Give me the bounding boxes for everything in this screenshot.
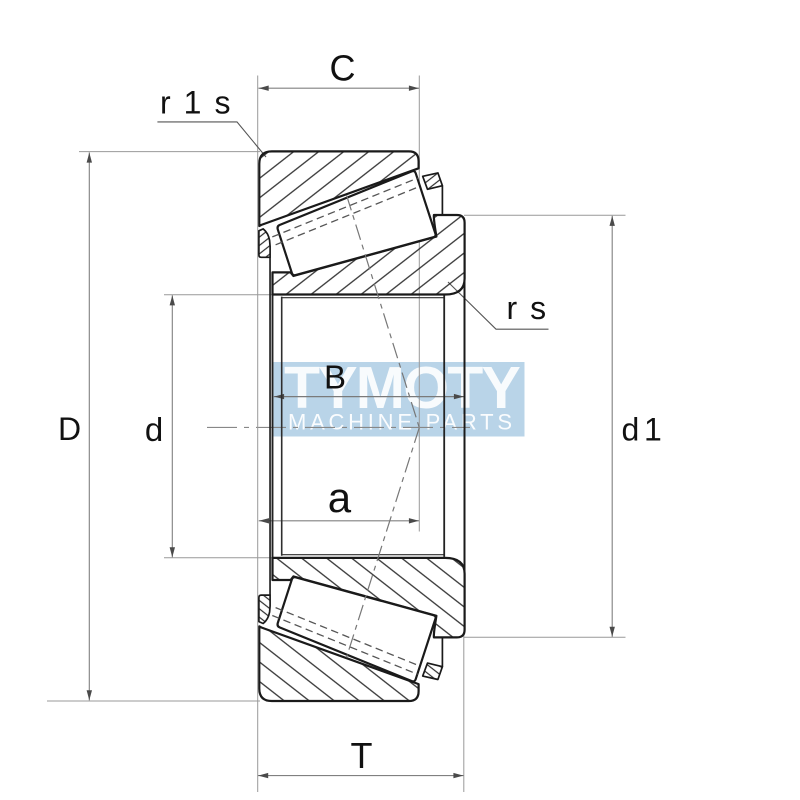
svg-text:r1s: r1s xyxy=(160,85,243,121)
svg-text:d1: d1 xyxy=(622,412,667,448)
svg-text:D: D xyxy=(58,411,81,447)
svg-text:C: C xyxy=(330,48,356,89)
svg-text:a: a xyxy=(328,474,352,521)
svg-text:d: d xyxy=(145,411,163,448)
svg-text:rs: rs xyxy=(507,290,560,326)
svg-text:B: B xyxy=(324,359,346,396)
svg-text:T: T xyxy=(351,735,373,776)
